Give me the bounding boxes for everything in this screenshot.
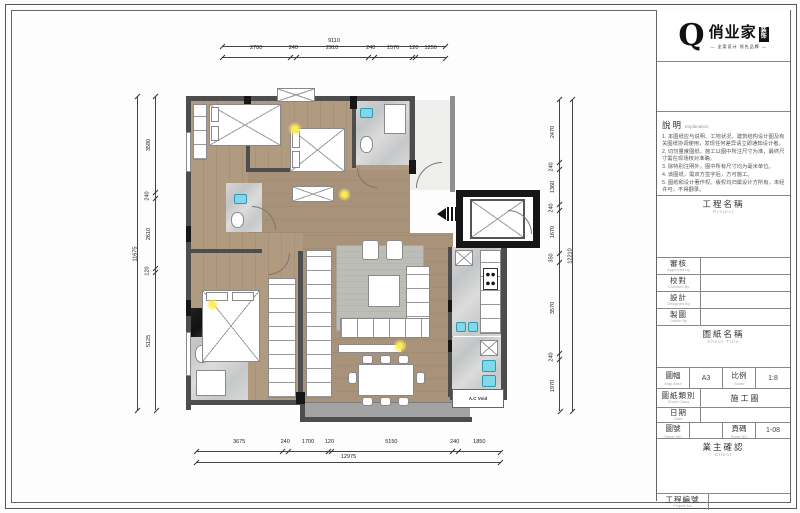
dim-segment-value: 1850 [473,439,485,445]
pillow [232,292,254,301]
chair [362,355,373,364]
dim-bottom-overall: 12975 [196,462,501,463]
dim-segment: 1850 [458,442,501,452]
sheet-no-value [690,423,723,438]
approved-by-value [701,258,790,274]
chair [380,355,391,364]
designed-by-row: 設計 Designed By [657,292,790,309]
note-5: 5. 图纸和设计著作权、版权均归属设计方所有，未经许可，不得翻录。 [662,180,785,194]
chair [362,397,373,406]
column [186,226,191,242]
dim-segment-value: 1700 [302,439,314,445]
project-no-label: 工程編號 Project No [657,494,709,510]
wall-bottom-left [186,400,305,405]
chair [398,355,409,364]
dim-segment: 1670 [550,211,560,254]
column [350,96,357,109]
ac-void-label: A.C Void [469,396,487,401]
dim-segment: 1360 [550,170,560,205]
sheet-class-label: 圖紙類別 Sheet Class [657,389,701,407]
dim-segment: 5125 [146,273,156,410]
dim-segment-value: 1360 [550,181,556,193]
chair [380,397,391,406]
pillow [211,107,219,122]
ceiling-light [206,298,219,311]
dim-segment: 2470 [550,100,560,163]
project-no-value [709,494,790,510]
dim-segment: 2910 [296,48,368,58]
dim-segment-value: 5125 [146,335,152,347]
explanation-section: 說明Explanation 1. 本图纸应与说明、工地状况、建筑结构设计图及有关… [657,112,790,196]
map-area-value: A3 [690,368,723,388]
stove-icon [483,268,498,290]
date-label: 日期 Date [657,408,701,422]
entry-hatch [447,207,456,221]
note-3: 3. 除特别注明外，图中所有尺寸均为毫米单位。 [662,164,785,171]
column [448,340,452,352]
washer-icon [482,360,496,372]
logo-tagline: — 全案设计 领先品牌 — [710,44,766,50]
sink-icon [234,194,247,204]
dim-segment: 3580 [146,97,156,193]
wardrobe [193,104,207,160]
date-row: 日期 Date [657,408,790,423]
scale-value: 1:8 [756,368,790,388]
dim-right-chain: 24702401360240167035035702401970 [550,100,560,411]
explanation-sublabel: Explanation [685,124,709,129]
dim-segment-value: 5150 [385,439,397,445]
checked-by-label: 校對 Checked By [657,275,701,291]
logo-q-icon: Q [678,21,704,51]
project-name-section: 工程名稱 Project [657,196,790,258]
sheet-no-label: 圖號 Sheet NO [657,423,690,438]
note-1: 1. 本图纸应与说明、工地状况、建筑结构设计图及有关图纸协调使用，发现任何差异请… [662,134,785,148]
wall-bottom-mid [300,417,472,422]
dim-segment: 1970 [550,360,560,411]
ceiling-light [338,188,351,201]
kitchen-cabinet [455,250,473,266]
sheet-title-sublabel: Sheet Title [657,339,790,344]
dim-right-overall: 12210 [572,100,573,411]
dim-segment-value: 350 [549,253,555,262]
sink-icon [456,322,466,332]
dim-left-chain: 358024026101205125 [146,97,156,410]
dim-segment-value: 1250 [425,45,437,51]
drawing-sheet: { "logo": { "q": "Q", "brand": "俏业家", "s… [0,0,800,513]
company-logo: Q 俏业家 装饰 — 全案设计 领先品牌 — [657,10,790,62]
bay-window [277,88,315,102]
ceiling-light [393,339,407,353]
dim-segment: 3675 [196,442,282,452]
column [448,300,452,312]
dim-segment: 2610 [146,199,156,269]
page-no-label: 頁碼 Page NO [723,423,756,438]
coffee-table [368,275,400,307]
sheet-title-section: 圖紙名稱 Sheet Title [657,326,790,368]
sheet-no-page-no-row: 圖號 Sheet NO 頁碼 Page NO 1-08 [657,423,790,439]
shower [384,104,406,134]
dim-segment-value: 1670 [550,226,556,238]
sheet-class-row: 圖紙類別 Sheet Class 施工圖 [657,389,790,408]
wall-right-outer [501,247,507,400]
ac-void-box: A.C Void [452,389,504,408]
dim-segment-value: 3675 [233,439,245,445]
dim-segment-value: 2470 [550,126,556,138]
dim-segment: 2780 [222,48,290,58]
column [409,160,416,174]
column [186,300,191,316]
window [186,132,191,172]
drawn-by-value [701,309,790,325]
wall-int-master-top [190,249,262,253]
map-area-scale-row: 圖幅 Map Area A3 比例 Scale 1:8 [657,368,790,389]
entry-arrow-icon [437,208,446,220]
armchair [386,240,403,260]
project-name-sublabel: Project [657,209,790,214]
drawn-by-row: 製圖 Drawn By [657,309,790,326]
title-block: Q 俏业家 装饰 — 全案设计 领先品牌 — 說明Explanation 1. … [656,10,790,501]
dim-segment-value: 2610 [146,228,152,240]
date-value [701,408,790,422]
column [296,392,305,404]
page-no-value: 1-08 [756,423,790,438]
map-area-label: 圖幅 Map Area [657,368,690,388]
note-2: 2. 切勿量度图纸，施工以图中所注尺寸为准，最终尺寸需在现场核对准确。 [662,149,785,163]
wall-kitchen-left [448,247,452,397]
dim-bottom-chain: 3675240170012051502401850 [196,442,501,452]
dim-segment: 3570 [550,263,560,355]
bed-icon [209,104,281,146]
project-no-row: 工程編號 Project No [657,494,790,510]
designed-by-label: 設計 Designed By [657,292,701,308]
washer-icon [482,375,496,387]
utility-cabinet [480,340,498,356]
armchair [362,240,379,260]
shower [196,370,226,396]
wall-int-bath-divider [352,100,356,168]
sink-icon [360,108,373,118]
pillow [292,151,300,168]
storage-cabinet [306,250,332,398]
checked-by-row: 校對 Checked By [657,275,790,292]
kitchen-counter [480,250,501,334]
approved-by-label: 審核 Approved By [657,258,701,274]
toilet-icon [231,212,244,228]
wall-entry-right [450,96,455,192]
drawn-by-label: 製圖 Drawn By [657,309,701,325]
dim-left-overall: 11675 [137,97,138,410]
dim-segment-value: 3580 [146,139,152,151]
chair [398,397,409,406]
ceiling-light [288,122,302,136]
approved-by-row: 審核 Approved By [657,258,790,275]
dim-segment-value: 3570 [550,302,556,314]
chair [416,372,425,384]
logo-brand-text: 俏业家 [709,21,757,42]
dim-segment: 1700 [288,442,328,452]
toilet-icon [360,136,373,153]
wall-int-master-right [298,251,303,401]
dim-segment: 1250 [415,48,446,58]
title-block-spare [657,62,790,112]
wardrobe [268,278,296,398]
client-confirm-sublabel: Client [657,452,790,457]
window [186,332,191,376]
pillow [211,126,219,141]
dim-segment: 5150 [331,442,452,452]
checked-by-value [701,275,790,291]
dim-top-chain: 2780240291024015701201250 [222,48,446,58]
client-confirm-section: 業主確認 Client [657,439,790,494]
sofa [340,318,430,338]
dining-table [358,364,414,396]
scale-label: 比例 Scale [723,368,756,388]
note-4: 4. 该图纸，需双方签字后，方可施工。 [662,172,785,179]
dim-segment-value: 1570 [387,45,399,51]
designed-by-value [701,292,790,308]
sink-icon [468,322,478,332]
dim-segment-value: 2910 [326,45,338,51]
dim-segment-value: 2780 [250,45,262,51]
dim-segment-value: 1970 [550,380,556,392]
explanation-label: 說明 [662,120,683,130]
chair [348,372,357,384]
dim-segment: 1570 [374,48,413,58]
cabinet [292,186,334,202]
logo-suffix-text: 装饰 [759,27,769,42]
sheet-class-value: 施工圖 [701,389,790,407]
